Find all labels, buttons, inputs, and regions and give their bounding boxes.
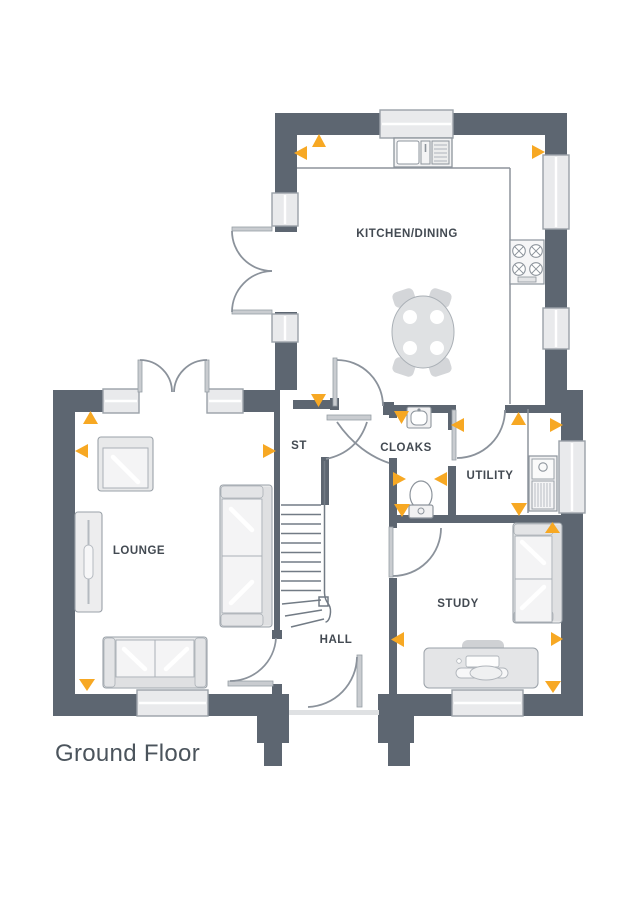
- sofa-lounge-right: [220, 485, 272, 627]
- french-door-leaf: [232, 227, 272, 231]
- kitchen-right-window-1: [543, 155, 569, 229]
- study-front-window: [452, 690, 523, 716]
- lounge-door-leaf: [228, 681, 273, 686]
- kitchen-top-window: [380, 110, 453, 138]
- room-label-kitchen: KITCHEN/DINING: [356, 228, 458, 240]
- front-door-leaf: [357, 655, 362, 707]
- marker-up: [312, 134, 326, 147]
- washing-machine: [529, 456, 557, 511]
- room-label-lounge: LOUNGE: [113, 545, 165, 557]
- orange-triangle-markers: [75, 134, 563, 693]
- lounge-sidelight-left: [103, 389, 139, 413]
- marker-left: [434, 472, 447, 486]
- dining-table: [392, 296, 454, 368]
- winder-tread: [282, 600, 321, 604]
- room-label-study: STUDY: [437, 598, 478, 610]
- marker-up: [511, 412, 526, 425]
- toilet: [409, 481, 433, 518]
- study-door-leaf: [389, 527, 393, 577]
- utility-right-window: [559, 441, 585, 513]
- room-label-utility: UTILITY: [467, 470, 514, 482]
- room-label-cloaks: CLOAKS: [380, 442, 432, 454]
- marker-down: [545, 681, 561, 693]
- laptop: [466, 656, 499, 667]
- desk: [424, 640, 538, 688]
- radiator: [75, 512, 102, 612]
- marker-right: [393, 472, 406, 486]
- marker-down: [511, 503, 527, 516]
- winder-tread: [291, 619, 324, 627]
- lounge-sidelight-right: [207, 389, 243, 413]
- dining-table-set: [391, 287, 454, 378]
- hob: [510, 240, 544, 284]
- room-label-hall: HALL: [320, 634, 353, 646]
- lounge-front-window: [137, 690, 208, 716]
- marker-up: [83, 411, 98, 424]
- basin: [407, 407, 431, 428]
- room-label-store: ST: [291, 440, 307, 452]
- kitchen-door-leaf: [333, 358, 337, 406]
- kitchen-right-window-2: [543, 308, 569, 349]
- marker-down: [79, 679, 95, 691]
- front-door-threshold: [289, 710, 379, 715]
- sofa-lounge-front: [103, 637, 207, 688]
- french-door-leaf: [138, 360, 142, 392]
- floor-plan: KITCHEN/DINING LOUNGE ST CLOAKS UTILITY …: [0, 0, 636, 900]
- marker-left: [75, 444, 88, 458]
- french-door-leaf: [232, 310, 272, 314]
- kitchen-sink: [394, 138, 452, 167]
- kitchen-left-window-1: [272, 193, 298, 226]
- mouse: [457, 659, 462, 664]
- utility-door-leaf: [452, 410, 456, 460]
- sofa-study: [513, 523, 562, 623]
- page-title: Ground Floor: [55, 740, 200, 768]
- french-door-leaf: [205, 360, 209, 392]
- kitchen-left-window-2: [272, 314, 298, 342]
- winder-tread: [285, 610, 322, 616]
- store-door-leaf: [327, 415, 371, 420]
- armchair: [98, 437, 153, 491]
